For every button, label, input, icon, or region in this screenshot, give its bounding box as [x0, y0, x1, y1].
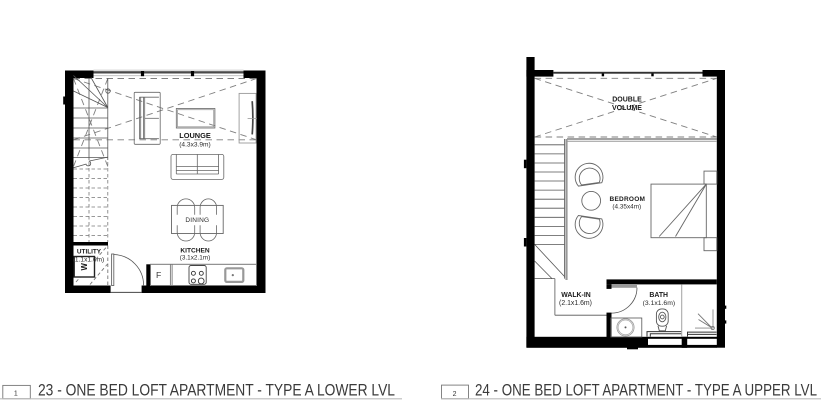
svg-text:1: 1 [14, 391, 18, 398]
svg-text:BATH: BATH [649, 292, 668, 299]
svg-text:KITCHEN: KITCHEN [180, 247, 210, 254]
svg-text:2: 2 [453, 391, 457, 398]
svg-text:DOUBLE: DOUBLE [612, 97, 642, 104]
svg-text:24 - ONE BED LOFT APARTMENT -: 24 - ONE BED LOFT APARTMENT - TYPE A UPP… [475, 381, 817, 399]
svg-text:W: W [80, 262, 89, 270]
svg-text:(2.1x1.6m): (2.1x1.6m) [559, 300, 592, 307]
svg-text:F: F [156, 270, 161, 280]
svg-text:WALK-IN: WALK-IN [561, 292, 590, 299]
svg-text:VOLUME: VOLUME [612, 105, 642, 112]
svg-text:(4.35x4m): (4.35x4m) [612, 203, 641, 210]
svg-text:(1.1x1.6m): (1.1x1.6m) [73, 256, 105, 263]
svg-text:(3.1x2.1m): (3.1x2.1m) [180, 254, 211, 261]
svg-text:LOUNGE: LOUNGE [179, 131, 211, 140]
svg-text:UTILITY: UTILITY [77, 249, 102, 256]
svg-text:DINING: DINING [185, 217, 209, 224]
svg-text:23 - ONE BED LOFT APARTMENT -: 23 - ONE BED LOFT APARTMENT - TYPE A LOW… [38, 381, 395, 399]
svg-text:(4.3x3.9m): (4.3x3.9m) [179, 141, 211, 148]
svg-text:(3.1x1.6m): (3.1x1.6m) [643, 300, 675, 307]
svg-text:BEDROOM: BEDROOM [610, 196, 646, 203]
